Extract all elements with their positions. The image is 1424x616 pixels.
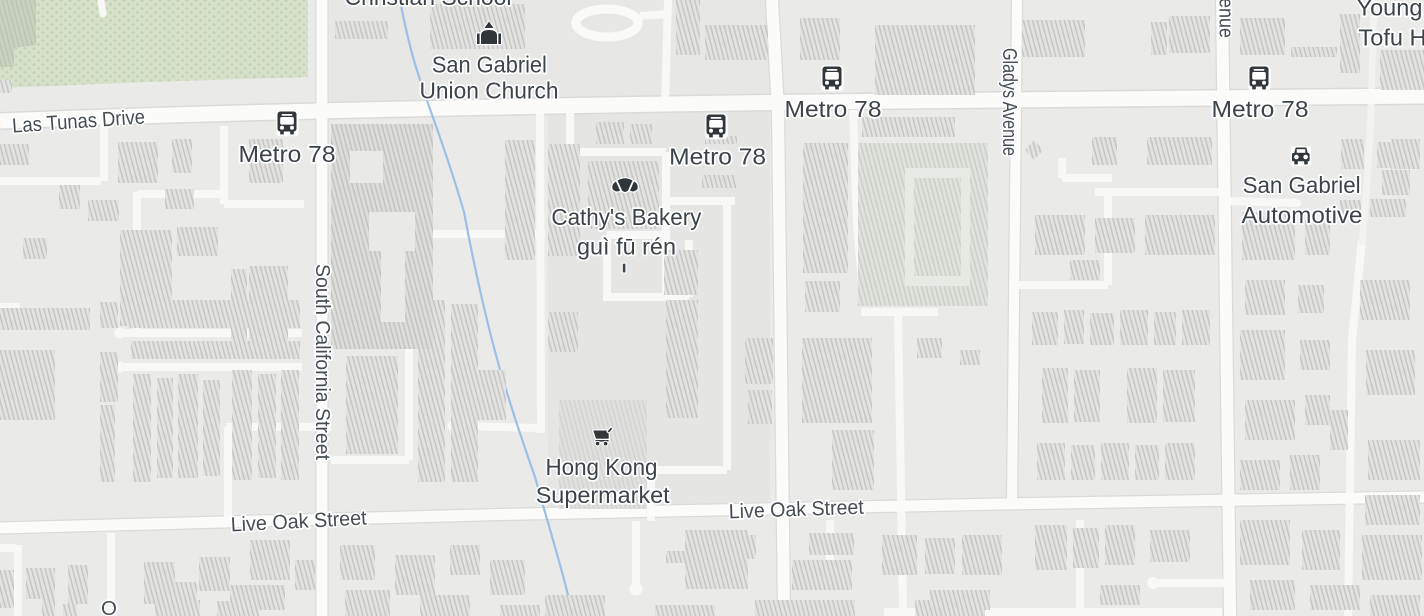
svg-text:Metro 78: Metro 78 bbox=[785, 96, 882, 122]
svg-text:Gladys Avenue: Gladys Avenue bbox=[998, 48, 1021, 156]
svg-text:Christian School: Christian School bbox=[345, 0, 512, 10]
svg-text:San Gabriel: San Gabriel bbox=[432, 52, 547, 78]
svg-text:Hong Kong: Hong Kong bbox=[546, 454, 658, 480]
svg-text:San Gabriel: San Gabriel bbox=[1243, 172, 1361, 198]
svg-text:Metro 78: Metro 78 bbox=[669, 144, 766, 170]
svg-text:guì fū rén: guì fū rén bbox=[577, 234, 676, 260]
svg-text:Young: Young bbox=[1357, 0, 1423, 21]
svg-text:enue: enue bbox=[1215, 0, 1238, 38]
svg-text:O: O bbox=[101, 597, 117, 616]
svg-text:Supermarket: Supermarket bbox=[536, 482, 670, 508]
svg-text:Tofu H: Tofu H bbox=[1359, 24, 1424, 50]
svg-text:Live Oak Street: Live Oak Street bbox=[728, 496, 864, 524]
svg-text:Cathy's Bakery: Cathy's Bakery bbox=[551, 204, 701, 230]
svg-text:South California Street: South California Street bbox=[311, 264, 334, 460]
svg-text:Metro 78: Metro 78 bbox=[1212, 96, 1309, 122]
svg-text:Metro 78: Metro 78 bbox=[239, 141, 336, 167]
svg-text:Union Church: Union Church bbox=[420, 77, 559, 103]
svg-text:Automotive: Automotive bbox=[1242, 202, 1363, 228]
